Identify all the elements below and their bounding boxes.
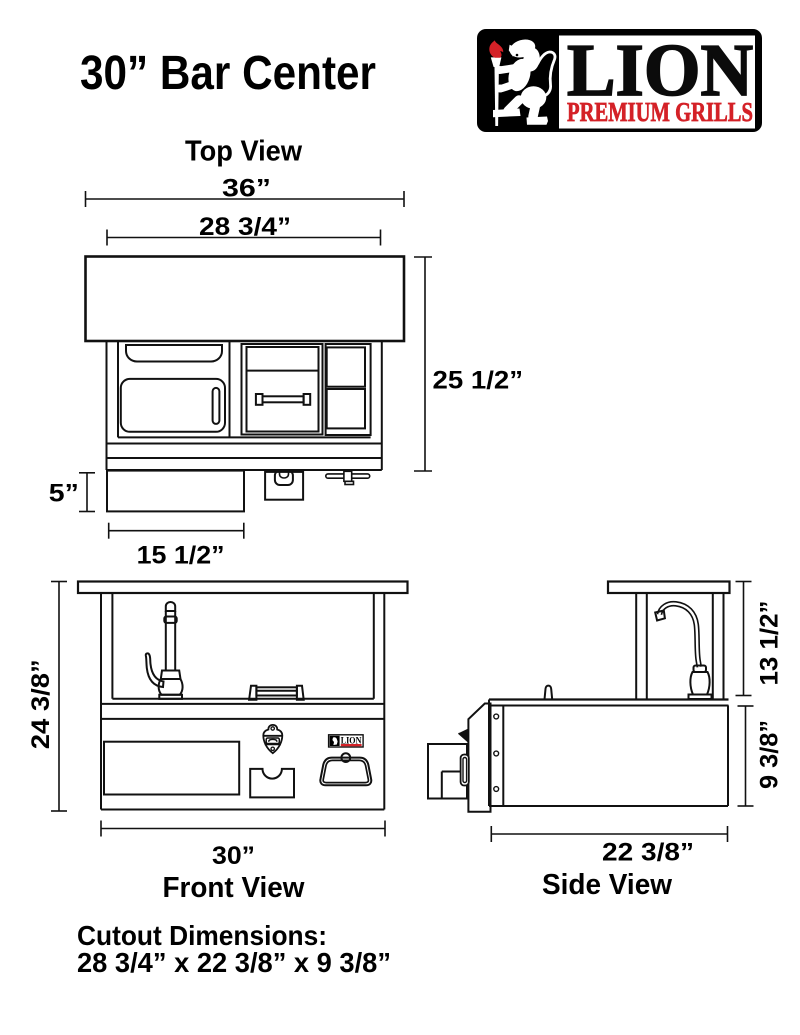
svg-text:24 3/8”: 24 3/8” — [27, 659, 55, 749]
svg-text:13 1/2”: 13 1/2” — [756, 601, 784, 686]
svg-text:36”: 36” — [222, 175, 271, 203]
svg-text:Front View: Front View — [163, 872, 305, 904]
svg-text:30”: 30” — [212, 842, 255, 870]
svg-text:15 1/2”: 15 1/2” — [137, 542, 225, 570]
svg-text:9 3/8”: 9 3/8” — [756, 720, 784, 789]
svg-text:Top View: Top View — [185, 136, 302, 168]
svg-text:22 3/8”: 22 3/8” — [602, 839, 694, 867]
svg-text:5”: 5” — [49, 480, 79, 508]
svg-text:30” Bar Center: 30” Bar Center — [80, 47, 376, 100]
svg-text:25 1/2”: 25 1/2” — [433, 367, 524, 395]
svg-text:Side View: Side View — [542, 869, 672, 901]
svg-text:PREMIUM GRILLS: PREMIUM GRILLS — [567, 97, 753, 127]
svg-text:28 3/4”: 28 3/4” — [199, 213, 291, 241]
svg-text:28 3/4” x 22 3/8” x 9 3/8”: 28 3/4” x 22 3/8” x 9 3/8” — [77, 947, 391, 978]
